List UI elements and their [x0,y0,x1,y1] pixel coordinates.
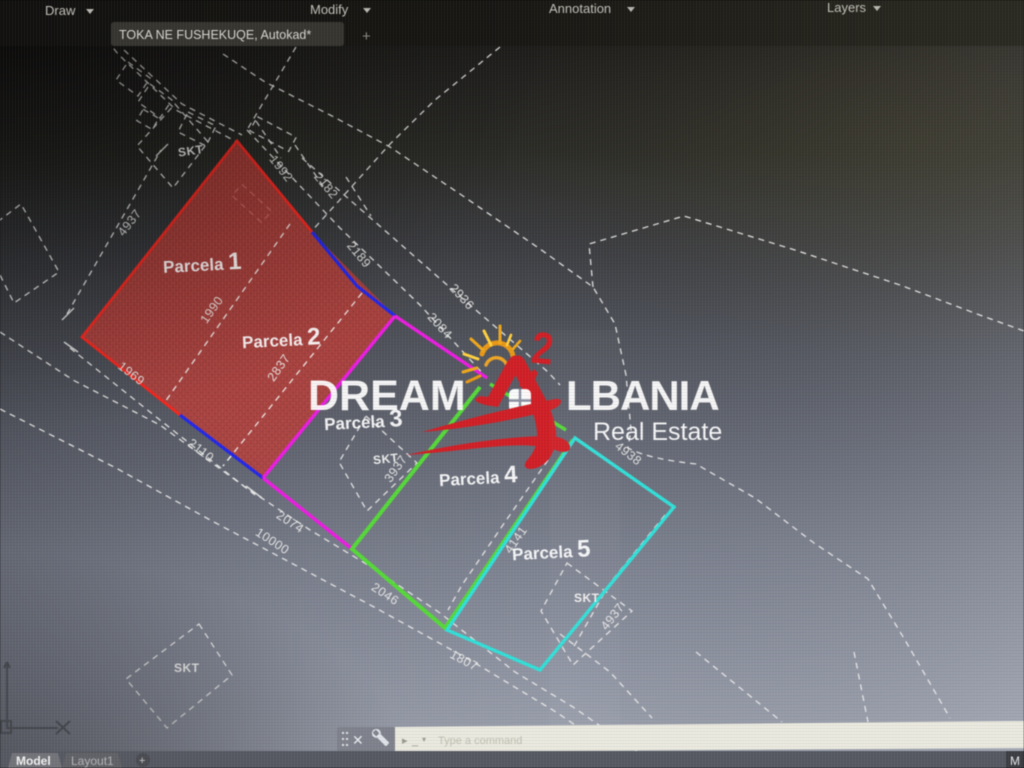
svg-text:M: M [1010,754,1020,768]
svg-text:Layers: Layers [827,0,867,15]
svg-text:Type a command: Type a command [438,735,522,747]
svg-text:_: _ [411,735,419,747]
svg-text:Layout1: Layout1 [71,754,114,768]
svg-text:▸: ▸ [402,735,408,747]
svg-text:✕: ✕ [352,732,364,748]
svg-text:Draw: Draw [45,3,76,18]
svg-text:Annotation: Annotation [549,1,611,16]
svg-text:+: + [362,28,371,45]
svg-text:Modify: Modify [310,2,349,17]
svg-text:+: + [139,755,145,767]
svg-text:▾: ▾ [422,735,426,744]
svg-text:Model: Model [16,754,51,768]
svg-text:TOKA NE FUSHEKUQE, Autokad*: TOKA NE FUSHEKUQE, Autokad* [119,28,311,42]
svg-text:SKT: SKT [372,451,399,468]
